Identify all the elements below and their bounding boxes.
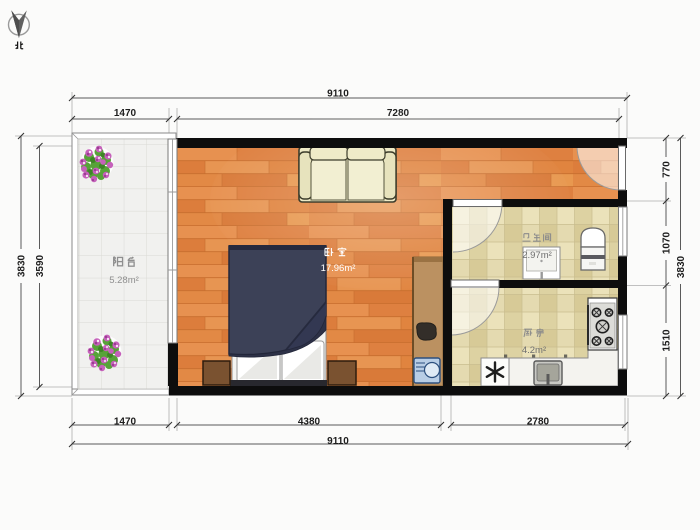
svg-text:4.2m²: 4.2m² [522, 345, 546, 356]
svg-text:1470: 1470 [114, 417, 137, 428]
svg-text:2780: 2780 [527, 417, 550, 428]
svg-text:770: 770 [662, 161, 673, 178]
svg-text:4380: 4380 [298, 417, 321, 428]
svg-text:3830: 3830 [17, 254, 28, 277]
svg-text:9110: 9110 [327, 89, 349, 100]
svg-text:3830: 3830 [676, 255, 687, 278]
svg-text:1470: 1470 [114, 108, 137, 119]
svg-text:3590: 3590 [35, 254, 46, 277]
svg-text:1070: 1070 [662, 231, 673, 254]
svg-text:17.96m²: 17.96m² [321, 263, 356, 274]
svg-text:2.97m²: 2.97m² [522, 250, 552, 261]
svg-text:5.28m²: 5.28m² [109, 275, 139, 286]
svg-text:1510: 1510 [662, 329, 673, 352]
svg-text:9110: 9110 [327, 436, 349, 447]
